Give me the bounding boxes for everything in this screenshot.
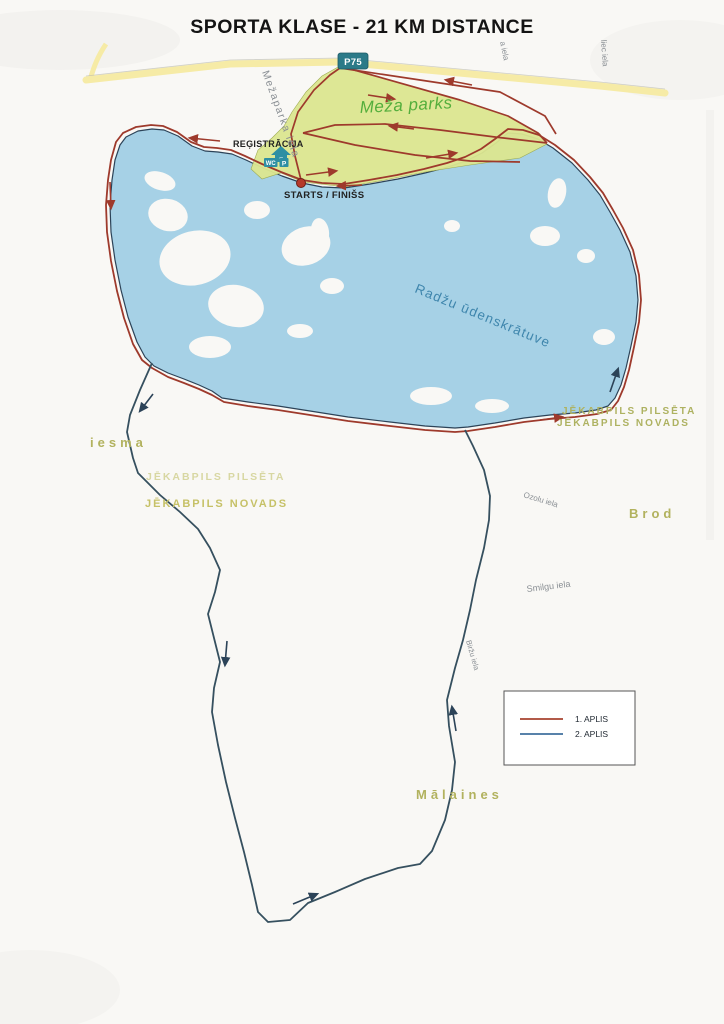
page-title: SPORTA KLASE - 21 KM DISTANCE: [190, 16, 534, 38]
parking-icon: P: [280, 158, 289, 168]
arrow-west-shore-down: [110, 182, 111, 208]
area-pilseta-left: JĒKABPILS PILSĒTA: [146, 471, 285, 483]
area-novads-left: JĒKABPILS NOVADS: [145, 498, 288, 510]
parking-icon-text: P: [282, 161, 287, 168]
arrow-southloop-down: [225, 641, 227, 665]
arrow-southloop-up: [452, 707, 456, 731]
arrow-shore-return-west: [338, 185, 362, 186]
wc-icon: WC: [264, 158, 278, 167]
legend-label-lap1: 1. APLIS: [575, 714, 608, 724]
street-top-right-1: a iela: [498, 41, 511, 62]
legend-box: [504, 691, 635, 765]
street-ozolu-iela: Ozolu iela: [522, 490, 559, 509]
start-finish-label: STARTS / FINIŠS: [284, 189, 364, 201]
arrow-north-shore-west: [190, 138, 220, 141]
course-map-svg: P75 REĢISTRĀCIJA WC P STARTS / FINIŠS Me…: [0, 0, 724, 1024]
street-top-right-2: liec iela: [599, 40, 610, 68]
legend-label-lap2: 2. APLIS: [575, 729, 608, 739]
arrow-southloop-start: [140, 394, 153, 411]
street-birzu-iela: Biržu iela: [464, 639, 481, 672]
area-novads-right: JĒKABPILS NOVADS: [557, 417, 690, 429]
legend: 1. APLIS 2. APLIS: [504, 691, 635, 765]
start-finish-dot: [297, 179, 306, 188]
area-iesma: iesma: [90, 435, 147, 450]
area-pilseta-right: JĒKABPILS PILSĒTA: [562, 405, 696, 417]
road-badge-text: P75: [344, 57, 362, 68]
scanned-map-page: P75 REĢISTRĀCIJA WC P STARTS / FINIŠS Me…: [0, 0, 724, 1024]
road-badge-p75: P75: [338, 53, 368, 69]
arrow-southloop-bottom-east: [293, 894, 317, 904]
wc-icon-text: WC: [266, 161, 277, 167]
area-malaines: Mālaines: [416, 787, 503, 802]
route-lap2: [127, 363, 490, 922]
street-smilgu-iela: Smilgu iela: [526, 579, 571, 594]
area-brod: Brod: [629, 506, 675, 521]
route-lap2-south-loop: [127, 363, 490, 922]
